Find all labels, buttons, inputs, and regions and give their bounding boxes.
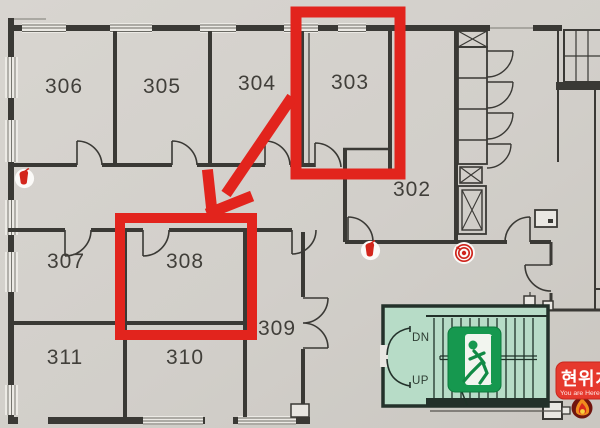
stair-up-label: UP xyxy=(412,375,429,387)
badge-title: 현위치 xyxy=(561,369,600,389)
exit-running-man-icon xyxy=(448,327,501,392)
badge-subtitle: You are Here xyxy=(560,390,600,397)
room-label-304: 304 xyxy=(238,72,276,95)
stair-down-label: DN xyxy=(412,332,430,344)
floor-plan-svg: DN UP 306 305 xyxy=(0,0,600,428)
room-label-302: 302 xyxy=(393,178,431,201)
floor-plan-photo: DN UP 306 305 xyxy=(0,0,600,428)
room-label-303: 303 xyxy=(331,71,369,94)
current-location-badge: 현위치 You are Here xyxy=(556,362,600,399)
room-label-307: 307 xyxy=(47,250,85,273)
room-label-310: 310 xyxy=(166,346,204,369)
fire-hose-reel-icon xyxy=(453,242,475,264)
room-label-305: 305 xyxy=(143,75,181,98)
room-label-311: 311 xyxy=(47,346,83,369)
room-label-306: 306 xyxy=(45,75,83,98)
room-label-308: 308 xyxy=(166,250,204,273)
room-label-309: 309 xyxy=(258,317,296,340)
flame-icon xyxy=(572,398,593,419)
stairwell: DN UP xyxy=(380,306,562,411)
hydrant-cabinet xyxy=(535,210,557,227)
